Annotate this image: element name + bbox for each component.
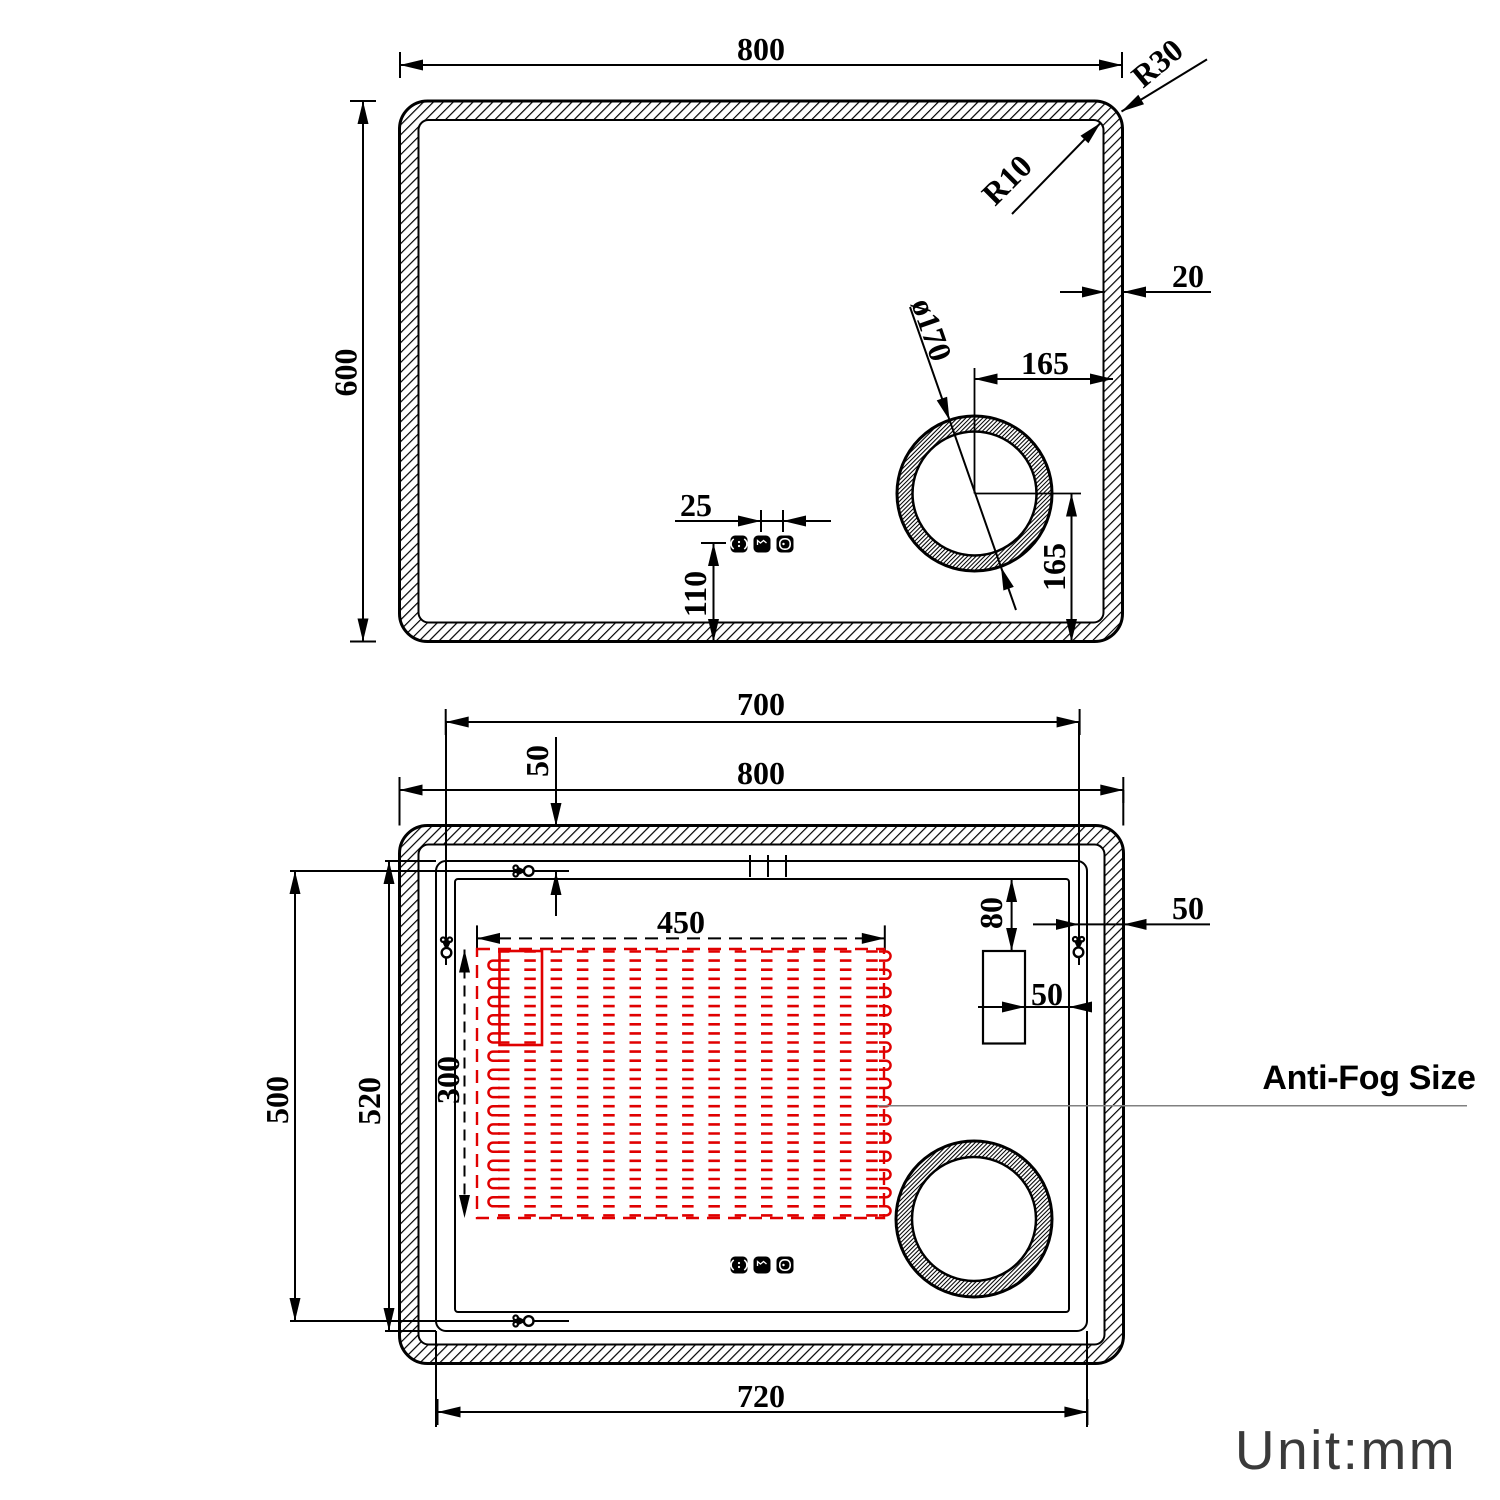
svg-text:50: 50 [1031,976,1063,1012]
svg-text:Anti-Fog Size: Anti-Fog Size [1262,1059,1475,1097]
svg-text:450: 450 [657,904,705,940]
svg-text:Unit:mm: Unit:mm [1235,1419,1457,1481]
svg-text:700: 700 [737,686,785,722]
svg-text:50: 50 [519,745,555,777]
svg-text:300: 300 [430,1056,466,1104]
svg-text:800: 800 [737,31,785,67]
svg-text:20: 20 [1172,258,1204,294]
svg-text:600: 600 [328,349,364,397]
svg-text:500: 500 [259,1076,295,1124]
svg-text:50: 50 [1172,890,1204,926]
svg-text:110: 110 [677,571,713,617]
svg-text:800: 800 [737,755,785,791]
svg-text:165: 165 [1036,543,1072,591]
svg-text:165: 165 [1021,345,1069,381]
svg-text:25: 25 [680,487,712,523]
svg-text:720: 720 [737,1378,785,1414]
svg-text:520: 520 [351,1077,387,1125]
svg-text:80: 80 [973,897,1009,929]
